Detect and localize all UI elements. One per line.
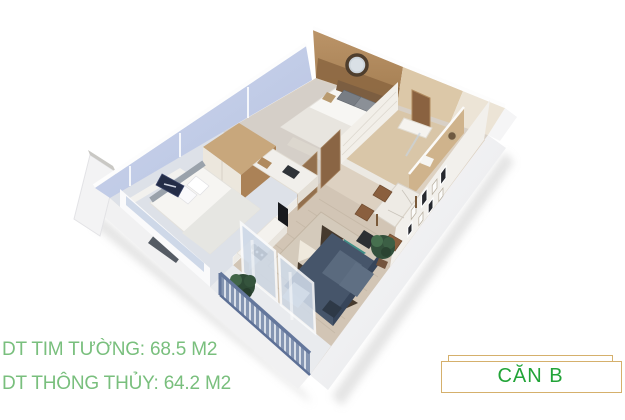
area-net-label: DT THÔNG THỦY: 64.2 M2 (2, 373, 231, 395)
bathroom-sink (448, 132, 457, 141)
area-gross-label: DT TIM TƯỜNG: 68.5 M2 (2, 339, 217, 361)
floorplan-page: DT TIM TƯỜNG: 68.5 M2 DT THÔNG THỦY: 64.… (0, 0, 625, 420)
unit-badge-label: CĂN B (441, 361, 620, 391)
